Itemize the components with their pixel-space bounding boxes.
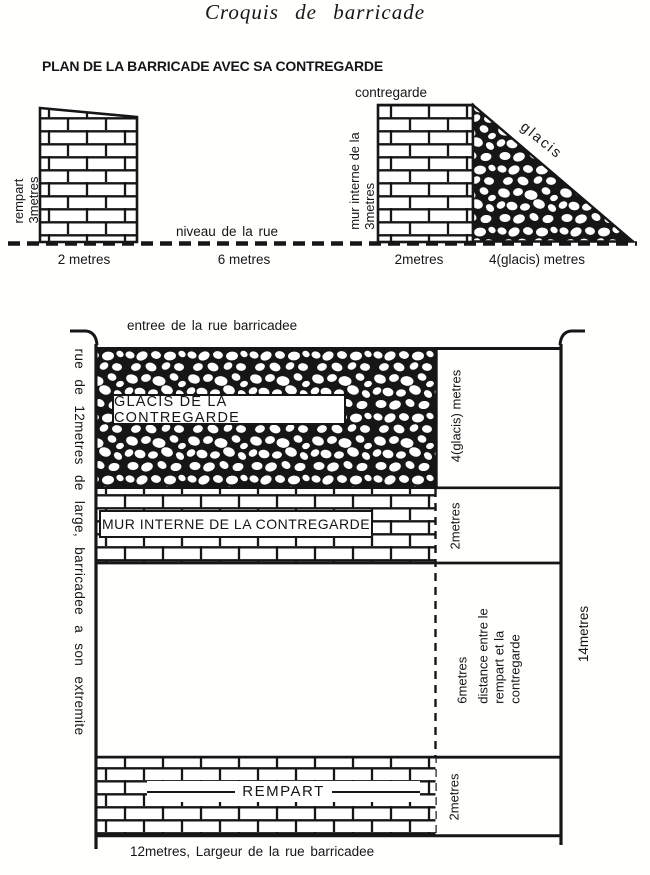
mur-interne-box-label: MUR INTERNE DE LA CONTREGARDE (102, 516, 370, 532)
dim-street-gap: 6 metres (218, 252, 271, 268)
rempart-wall-cross-section (40, 108, 137, 242)
contregarde-label: contregarde (355, 85, 427, 101)
diagram-canvas (0, 0, 650, 875)
mur-label-line2: 3metres (362, 132, 377, 230)
plan-subtitle: PLAN DE LA BARRICADE AVEC SA CONTREGARDE (42, 58, 383, 74)
glacis-slope-cross-section (473, 105, 633, 242)
mur-label-line1: mur interne de la (347, 132, 362, 230)
rempart-rule-right (332, 791, 420, 793)
street-level-label: niveau de la rue (176, 224, 278, 240)
rempart-strip-label: REMPART (235, 783, 331, 800)
plan-dim-gap: 6metres (455, 608, 471, 703)
plan-dim-mur: 2metres (449, 503, 464, 550)
contregarde-wall-cross-section (378, 105, 473, 242)
rempart-height-label: rempart 3metres (11, 177, 41, 224)
street-entry-hook-right (560, 331, 585, 345)
gap-desc-line3: contregarde (508, 608, 524, 703)
dim-glacis-width: 4(glacis) metres (489, 252, 585, 268)
rempart-label-line1: rempart (11, 177, 26, 224)
dim-rempart-width: 2 metres (58, 252, 111, 268)
rempart-rule-left (147, 791, 235, 793)
plan-dim-total: 14metres (576, 606, 592, 662)
street-entry-label: entree de la rue barricadee (127, 318, 297, 334)
mur-interne-box: MUR INTERNE DE LA CONTREGARDE (99, 510, 373, 538)
street-side-label: rue de 12metres de large, barricadee a s… (71, 349, 87, 736)
street-entry-hook-left (70, 331, 97, 345)
mur-interne-height-label: mur interne de la 3metres (347, 132, 377, 230)
plan-dim-rempart: 2metres (448, 774, 463, 821)
gap-desc-line1: distance entre le (476, 608, 492, 703)
rempart-strip: REMPART (147, 781, 420, 802)
glacis-box-label: GLACIS DE LA CONTREGARDE (114, 394, 344, 426)
dim-mur-width: 2metres (395, 252, 444, 268)
plan-bottom-caption: 12metres, Largeur de la rue barricadee (130, 844, 374, 860)
rempart-label-line2: 3metres (26, 177, 41, 224)
gap-desc-line2: rempart et la (492, 608, 508, 703)
plan-dim-glacis: 4(glacis) metres (450, 370, 465, 462)
glacis-box: GLACIS DE LA CONTREGARDE (112, 394, 346, 425)
page-title: Croquis de barricade (0, 0, 630, 25)
scanned-diagram-page: Croquis de barricade PLAN DE LA BARRICAD… (0, 0, 650, 875)
plan-gap-label: 6metres distance entre le rempart et la … (455, 608, 524, 703)
